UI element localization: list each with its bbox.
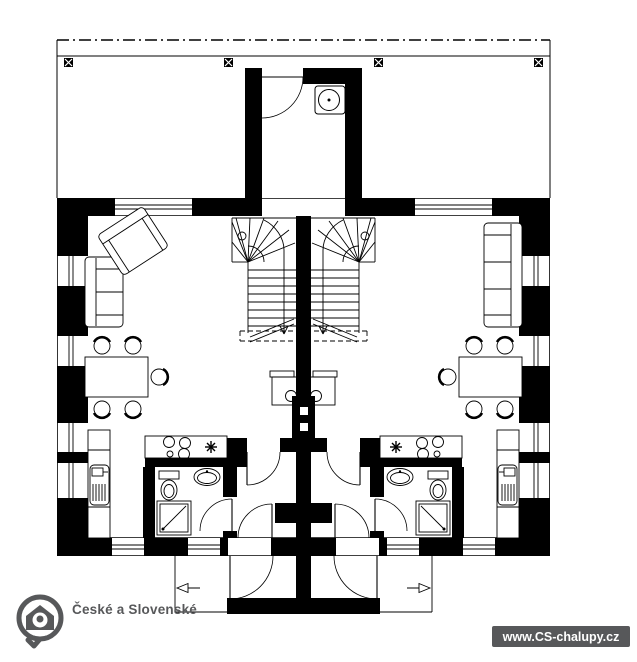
brand-name: České a Slovenské <box>72 602 197 617</box>
window <box>519 256 550 286</box>
chimney-flue <box>300 423 308 431</box>
left-exterior-wall <box>57 198 88 556</box>
floor-plan-page: České a Slovenské www.CS-chalupy.cz <box>0 0 637 662</box>
dining-table <box>85 357 148 397</box>
chair <box>94 401 110 418</box>
toilet <box>159 471 179 500</box>
right-exterior-wall <box>519 198 550 556</box>
entrance-porch-wall <box>227 598 380 614</box>
living-room-door <box>247 452 280 485</box>
porch-room-wall <box>245 68 262 216</box>
chair <box>125 401 141 418</box>
website-badge: www.CS-chalupy.cz <box>492 626 630 647</box>
window <box>188 538 220 556</box>
house-location-pin-icon <box>10 584 68 656</box>
window <box>415 198 492 216</box>
kitchen <box>88 430 227 538</box>
window <box>519 463 550 498</box>
terrace <box>57 40 550 198</box>
window <box>57 423 88 452</box>
fireplace-stove <box>272 377 298 405</box>
window <box>387 538 419 556</box>
column-marker <box>64 58 73 67</box>
column-marker <box>374 58 383 67</box>
washbasin <box>194 469 220 486</box>
website-url: www.CS-chalupy.cz <box>503 630 620 644</box>
chair <box>94 337 110 354</box>
shower <box>157 501 191 535</box>
entrance-door <box>230 556 273 599</box>
pin-dot <box>37 616 44 623</box>
hall-door <box>238 504 272 538</box>
bathroom-door <box>200 499 232 531</box>
window <box>57 336 88 366</box>
stair-direction-line <box>264 220 284 334</box>
floor-plan-drawing <box>0 0 637 662</box>
column-marker <box>534 58 543 67</box>
window <box>112 538 144 556</box>
window <box>57 256 88 286</box>
sofa-right-unit <box>484 223 522 327</box>
terrace-columns <box>64 58 543 67</box>
entry-arrow <box>177 584 200 593</box>
chimney-flue <box>300 407 308 415</box>
window <box>519 423 550 452</box>
window <box>519 336 550 366</box>
window <box>115 198 192 216</box>
chimney <box>292 396 315 440</box>
chair <box>151 369 168 385</box>
chair <box>125 337 141 354</box>
column-marker <box>224 58 233 67</box>
staircase <box>232 218 296 377</box>
window <box>57 463 88 498</box>
porch-room-wall <box>345 68 362 216</box>
brand-logo: České a Slovenské <box>10 584 68 656</box>
sofa-left-unit <box>85 257 123 327</box>
doors <box>200 452 280 599</box>
bathroom <box>157 469 220 536</box>
window <box>463 538 495 556</box>
